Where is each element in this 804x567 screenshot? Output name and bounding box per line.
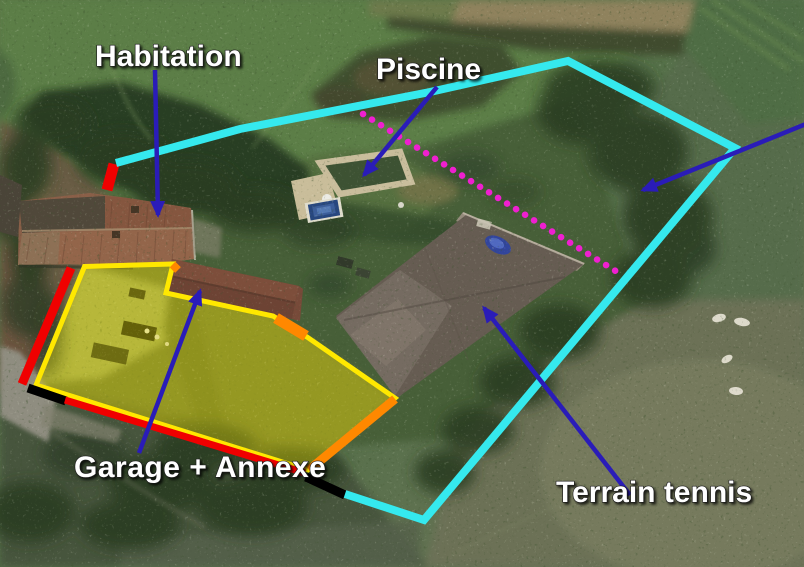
svg-text:Piscine: Piscine <box>376 53 481 86</box>
svg-text:Garage + Annexe: Garage + Annexe <box>74 451 326 484</box>
svg-text:Habitation: Habitation <box>95 40 242 73</box>
svg-text:Terrain tennis: Terrain tennis <box>556 476 752 509</box>
